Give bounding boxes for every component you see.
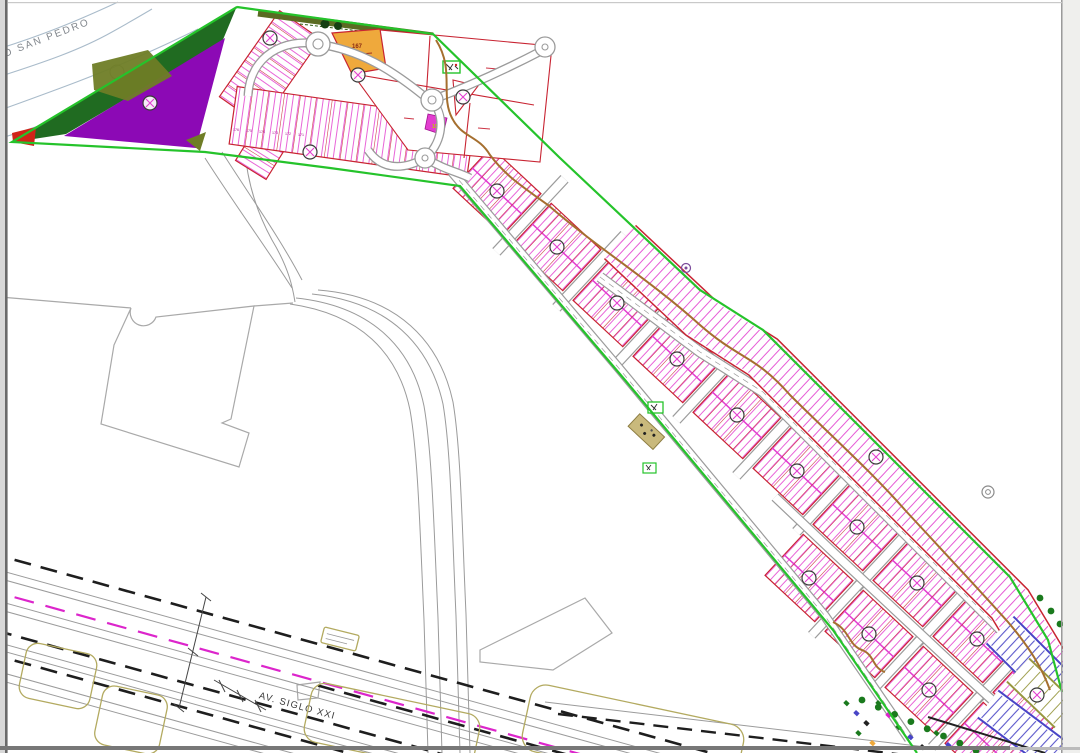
equipment-icon — [863, 720, 869, 726]
tree-marker — [1048, 608, 1055, 615]
lot-number: 171 — [298, 133, 304, 137]
block-number-marker — [922, 683, 936, 697]
lot-number: 172 — [285, 132, 291, 136]
cul-de-sac-bulb — [421, 89, 443, 111]
equipment-icon — [843, 700, 849, 706]
tree-marker — [924, 725, 931, 732]
block-number-marker — [351, 68, 365, 82]
lot-number: 174 — [259, 130, 265, 134]
cul-de-sac-bulb — [535, 37, 555, 57]
block-number-marker — [670, 352, 684, 366]
block-number-marker — [610, 296, 624, 310]
equipment-icon — [853, 710, 859, 716]
block-number-marker — [869, 450, 883, 464]
block-number-marker — [970, 632, 984, 646]
parcel-arrow-lot — [480, 598, 612, 670]
manhole-icon — [682, 264, 691, 273]
block-number-marker — [790, 464, 804, 478]
tree-group-icon — [334, 22, 342, 30]
playground-icon — [643, 463, 656, 473]
dimension-tick — [219, 680, 261, 712]
block-number-marker — [1030, 688, 1044, 702]
lot-number: 173 — [272, 131, 278, 135]
adjacent-parcel-outline — [519, 682, 746, 753]
cul-de-sac-bulb — [415, 148, 435, 168]
top-cluster: 167 15 176 175 174 — [233, 13, 665, 473]
tree-marker — [859, 697, 866, 704]
tree-marker — [908, 718, 915, 725]
site-plan-drawing: RIO SAN PEDRO — [0, 0, 1080, 753]
block-number-marker — [802, 571, 816, 585]
access-road — [290, 304, 428, 753]
equipment-icon — [855, 730, 861, 736]
block-number-marker — [303, 145, 317, 159]
cul-de-sac-bulb — [306, 32, 330, 56]
block-number-marker — [456, 90, 470, 104]
access-roads — [205, 100, 470, 753]
block-number-marker — [263, 31, 277, 45]
dimension-lines — [174, 593, 266, 712]
lot-number: 176 — [233, 128, 239, 132]
large-vacant-parcel — [101, 306, 254, 467]
block-number-marker — [850, 520, 864, 534]
survey-monument-icon — [982, 486, 994, 498]
tree-marker — [940, 733, 947, 740]
tree-marker — [1037, 595, 1044, 602]
block-number-marker — [730, 408, 744, 422]
lot-number: 175 — [246, 129, 252, 133]
block-number-marker — [490, 184, 504, 198]
access-road — [318, 290, 470, 753]
block-number-marker — [550, 240, 564, 254]
tree-marker — [956, 740, 963, 747]
block-number-marker — [143, 96, 157, 110]
river-label: RIO SAN PEDRO — [0, 17, 92, 65]
access-road — [312, 294, 460, 753]
plan-page: RIO SAN PEDRO — [0, 0, 1080, 753]
block-number-marker — [910, 576, 924, 590]
adjacent-parcels — [17, 627, 747, 753]
tree-group-icon — [321, 20, 330, 29]
block-number-marker — [862, 627, 876, 641]
label-box-text-marks — [326, 634, 354, 646]
